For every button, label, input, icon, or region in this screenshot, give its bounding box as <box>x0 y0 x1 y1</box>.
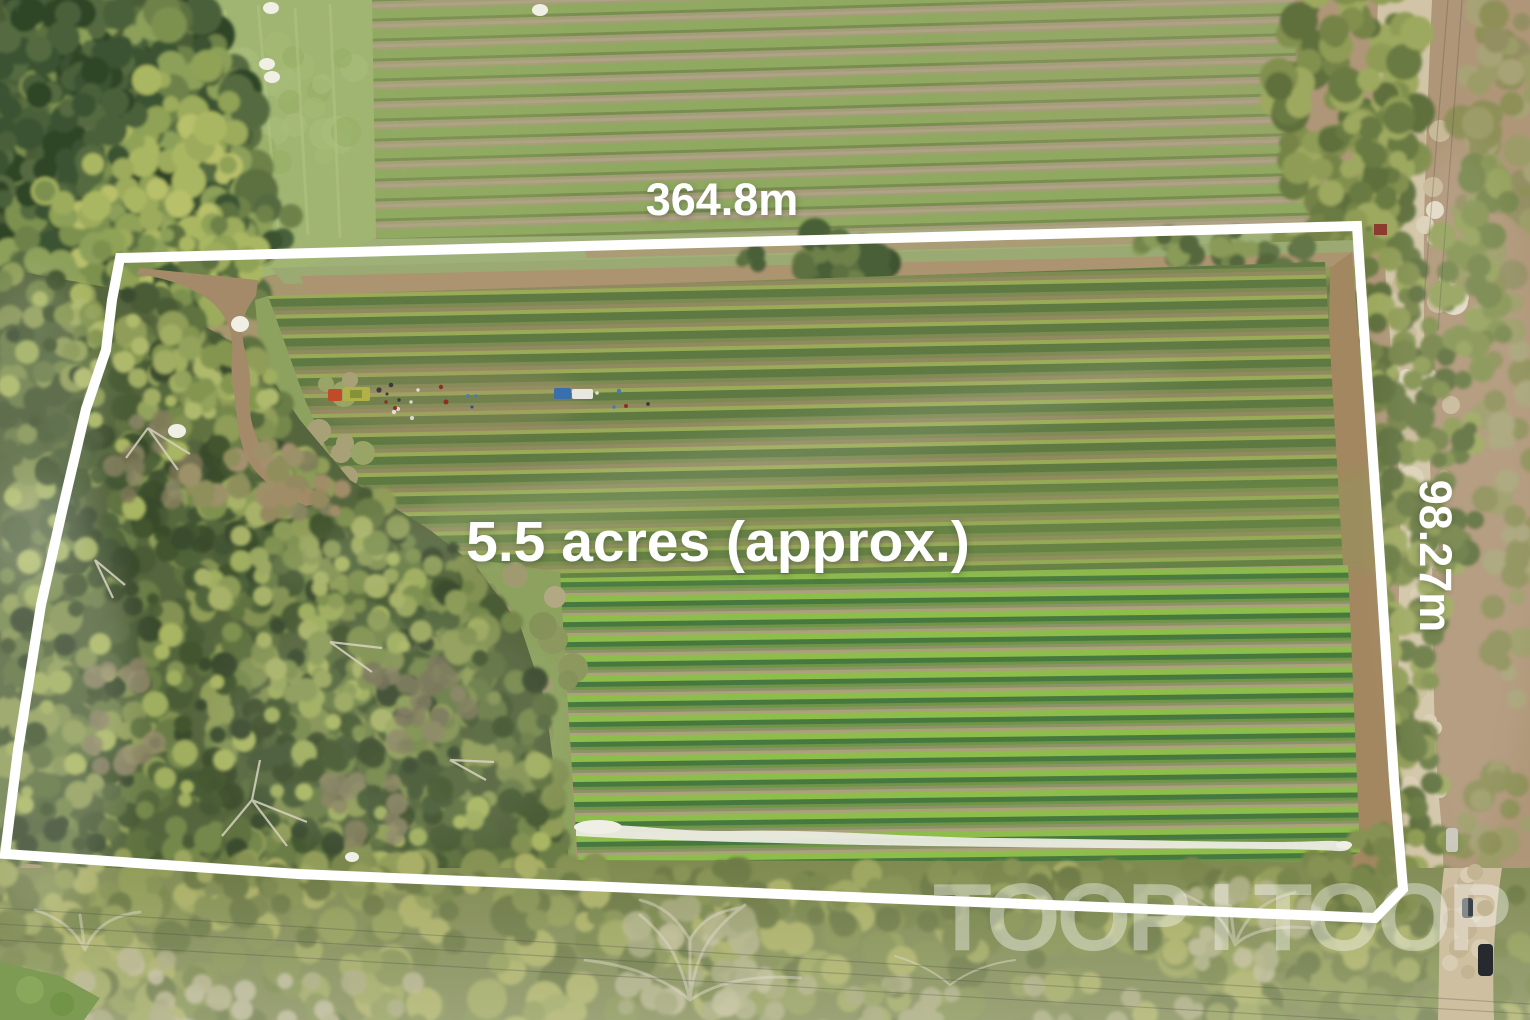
svg-text:5.5 acres (approx.): 5.5 acres (approx.) <box>466 510 970 574</box>
svg-text:364.8m: 364.8m <box>646 174 799 225</box>
svg-text:TOOP I TOOP: TOOP I TOOP <box>933 864 1509 971</box>
svg-text:98.27m: 98.27m <box>1410 480 1461 633</box>
